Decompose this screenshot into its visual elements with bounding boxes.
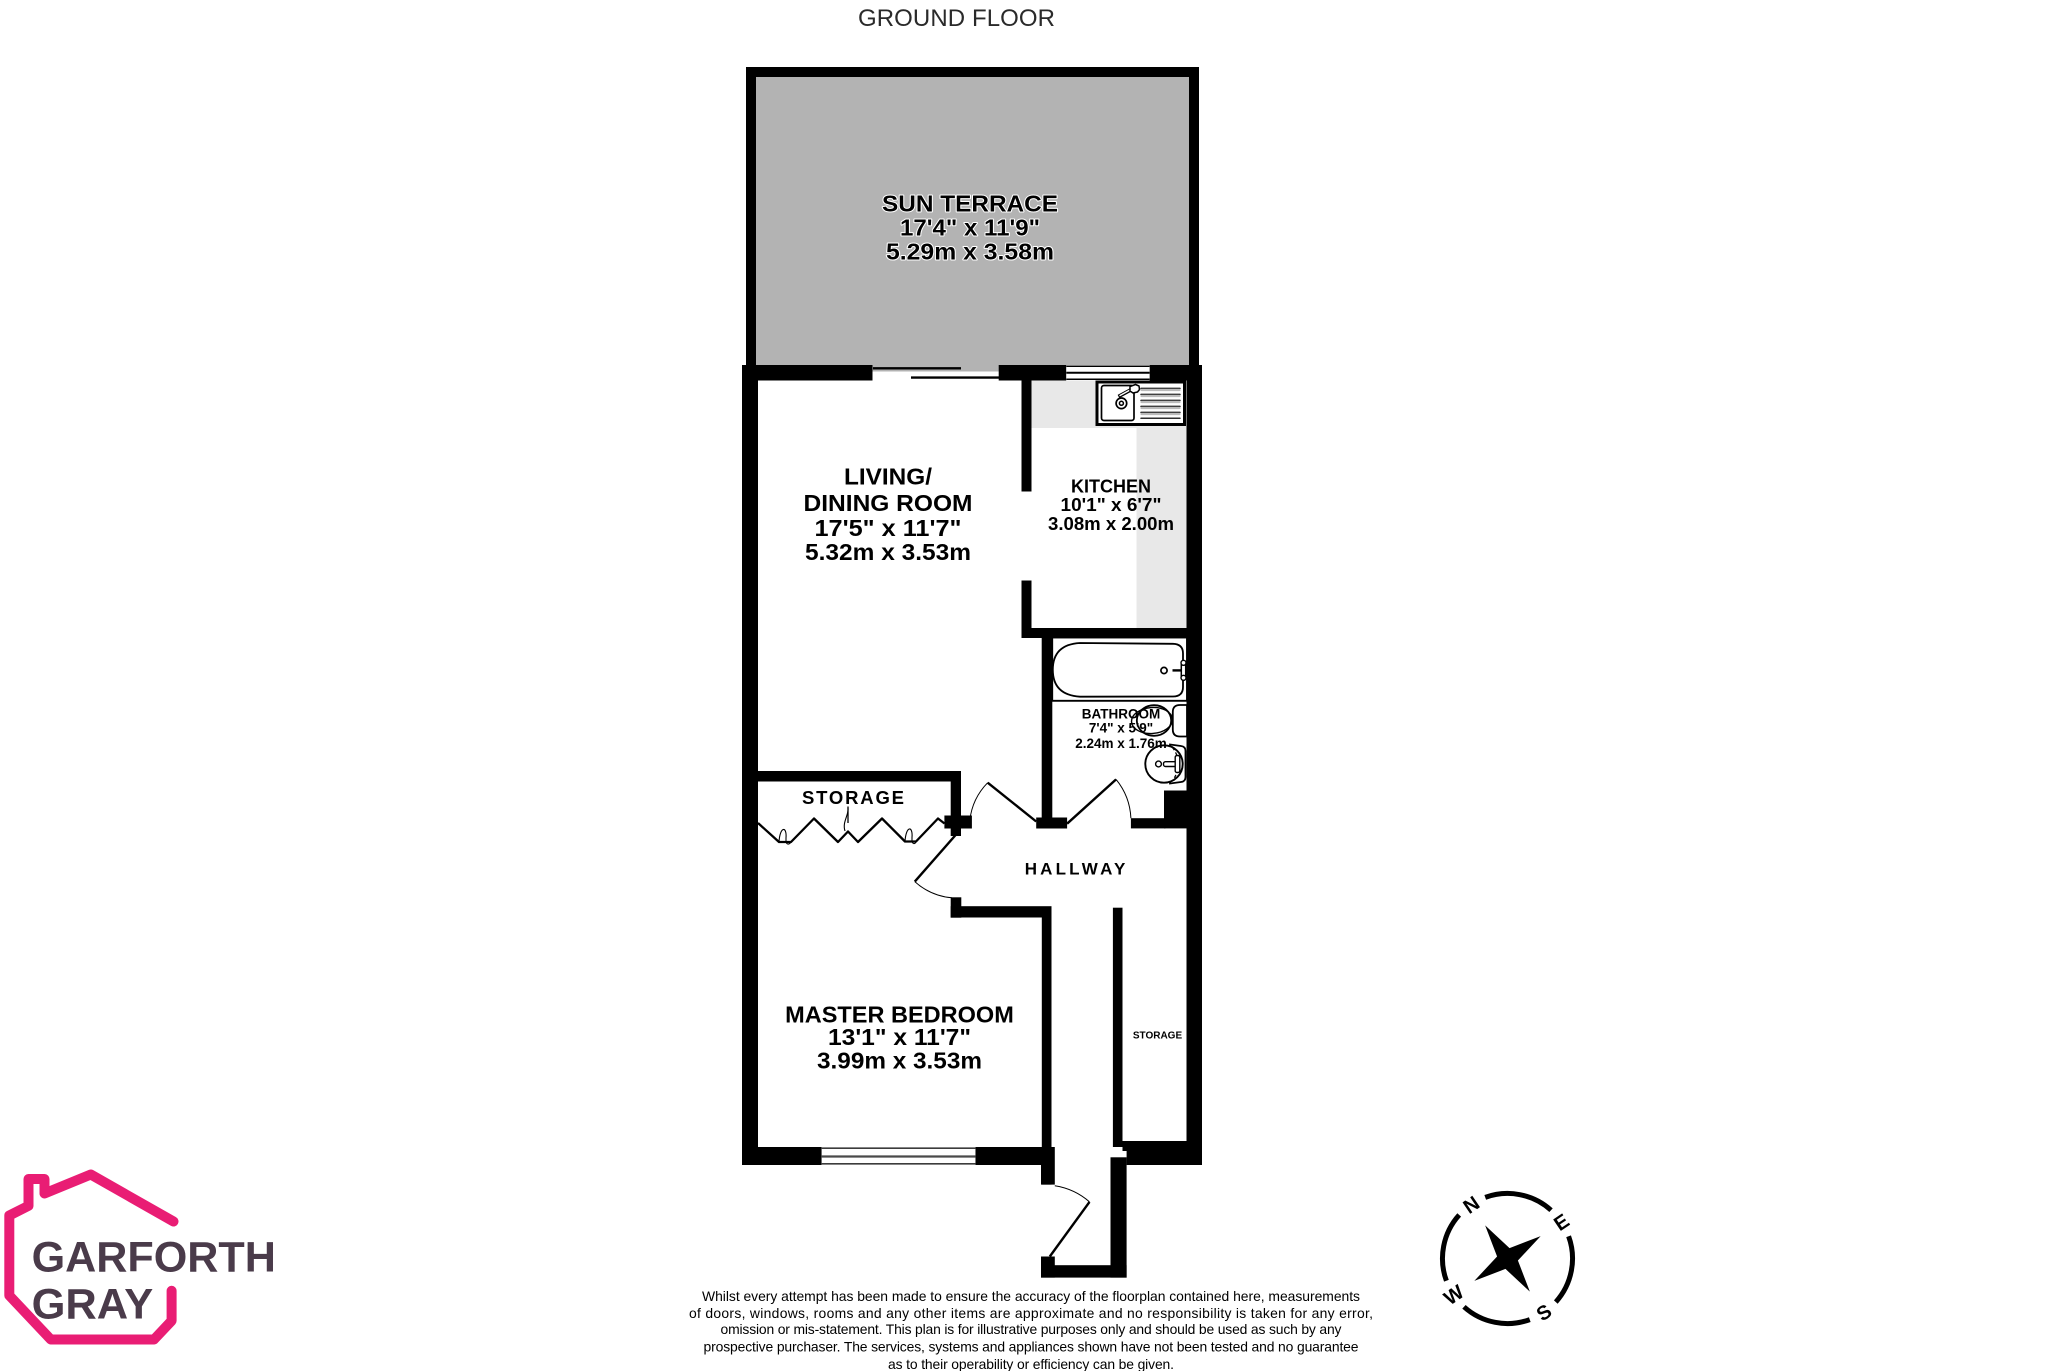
svg-text:LIVING/: LIVING/ bbox=[844, 464, 932, 490]
svg-text:STORAGE: STORAGE bbox=[1133, 1031, 1183, 1042]
svg-text:13'1" x 11'7": 13'1" x 11'7" bbox=[828, 1024, 971, 1050]
svg-text:GRAY: GRAY bbox=[32, 1281, 154, 1329]
svg-text:DINING ROOM: DINING ROOM bbox=[804, 490, 973, 516]
svg-text:3.99m x 3.53m: 3.99m x 3.53m bbox=[817, 1048, 982, 1074]
svg-text:17'4" x 11'9": 17'4" x 11'9" bbox=[900, 214, 1040, 240]
svg-text:10'1" x 6'7": 10'1" x 6'7" bbox=[1061, 495, 1162, 515]
svg-text:KITCHEN: KITCHEN bbox=[1071, 477, 1151, 497]
svg-text:STORAGE: STORAGE bbox=[802, 787, 904, 808]
svg-text:17'5" x 11'7": 17'5" x 11'7" bbox=[815, 515, 962, 541]
svg-text:GROUND FLOOR: GROUND FLOOR bbox=[858, 5, 1055, 32]
svg-text:HALLWAY: HALLWAY bbox=[1025, 860, 1126, 879]
svg-text:3.08m x 2.00m: 3.08m x 2.00m bbox=[1048, 514, 1174, 534]
svg-text:5.29m x 3.58m: 5.29m x 3.58m bbox=[886, 238, 1054, 264]
svg-text:prospective purchaser. The ser: prospective purchaser. The services, sys… bbox=[704, 1339, 1359, 1355]
svg-text:as to their operability or eff: as to their operability or efficiency ca… bbox=[888, 1356, 1174, 1371]
svg-text:SUN TERRACE: SUN TERRACE bbox=[882, 190, 1058, 216]
svg-text:omission or mis-statement. Thi: omission or mis-statement. This plan is … bbox=[721, 1321, 1342, 1337]
svg-text:7'4" x 5'9": 7'4" x 5'9" bbox=[1089, 720, 1153, 735]
svg-text:5.32m x 3.53m: 5.32m x 3.53m bbox=[805, 539, 971, 565]
svg-text:2.24m x 1.76m: 2.24m x 1.76m bbox=[1075, 736, 1167, 751]
svg-text:GARFORTH: GARFORTH bbox=[32, 1234, 276, 1282]
svg-text:Whilst every attempt has been: Whilst every attempt has been made to en… bbox=[702, 1288, 1360, 1304]
svg-text:of doors, windows, rooms and a: of doors, windows, rooms and any other i… bbox=[689, 1305, 1373, 1321]
